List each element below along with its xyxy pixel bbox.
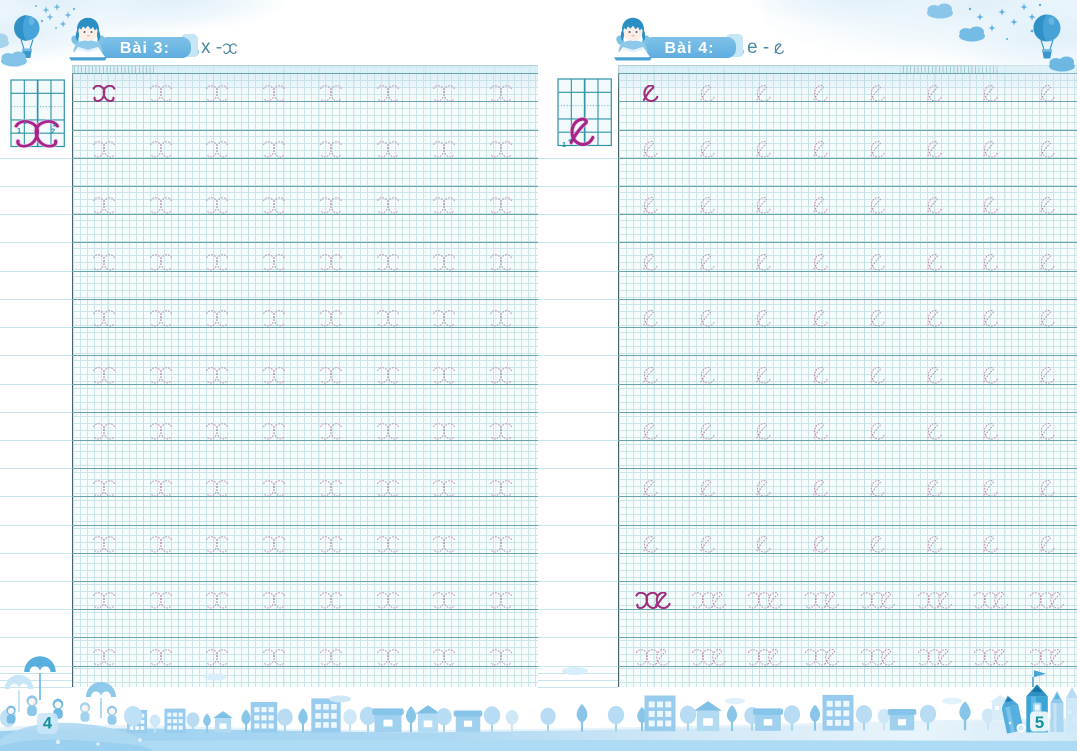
svg-text:1: 1 xyxy=(562,140,566,149)
svg-text:4: 4 xyxy=(43,715,53,733)
svg-text:1: 1 xyxy=(17,126,21,135)
svg-text:5: 5 xyxy=(1035,713,1044,732)
svg-text:2: 2 xyxy=(51,127,55,136)
